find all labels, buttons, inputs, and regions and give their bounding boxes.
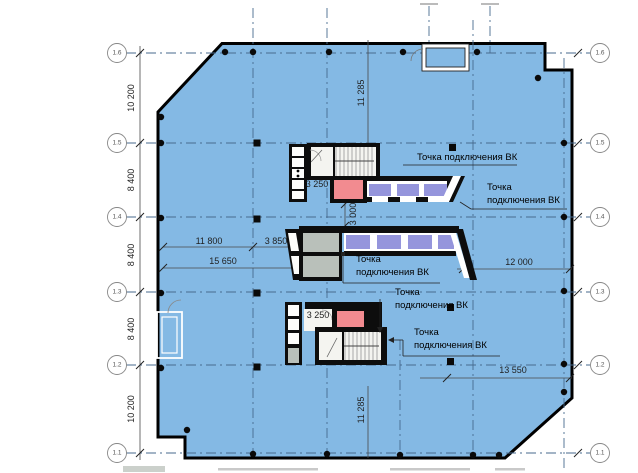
dim-bay-top: 11 285 (356, 80, 366, 107)
dim-core-width: 3 850 (265, 236, 288, 246)
axis-label-right-1-2: 1.2 (595, 362, 604, 369)
dim-core-offset: 11 800 (196, 236, 223, 246)
axis-label-right-1-6: 1.6 (595, 50, 604, 57)
vk-label-3-line2: подключения ВК (356, 267, 429, 278)
dim-left-bay-0: 10 200 (126, 84, 136, 112)
axis-label-left-1-6: 1.6 (112, 50, 121, 57)
dim-left-bay-4: 10 200 (126, 395, 136, 423)
vk-label-4-line1: Точка (395, 287, 420, 298)
dim-left-bay-1: 8 400 (126, 169, 136, 192)
dim-right-span: 12 000 (505, 257, 533, 267)
shaft-cells-bottom (288, 305, 299, 344)
axis-label-right-1-1: 1.1 (595, 450, 604, 457)
shaft-cells (292, 147, 304, 199)
dim-core-gap: 3 000 (348, 203, 358, 226)
vk-label-2-line1: Точка (487, 182, 512, 193)
axis-label-right-1-4: 1.4 (595, 214, 604, 221)
vk-label-5-line2: подключения ВК (414, 340, 487, 351)
axis-label-left-1-4: 1.4 (112, 214, 121, 221)
vk-label-2-line2: подключения ВК (487, 195, 560, 206)
gray-room-1 (303, 231, 339, 252)
gray-room-2 (303, 256, 339, 277)
vk-label-1: Точка подключения ВК (417, 152, 517, 163)
dim-left-bay-3: 8 400 (126, 318, 136, 341)
axis-label-right-1-3: 1.3 (595, 289, 604, 296)
dim-shaft-bottom: 3 250 (307, 310, 330, 320)
core-bottom (285, 302, 387, 365)
dim-left-bay-2: 8 400 (126, 244, 136, 267)
dim-bottom-span: 13 550 (499, 365, 527, 375)
dim-bay-bottom: 11 285 (356, 397, 366, 424)
dim-shaft-top: 3 250 (306, 179, 329, 189)
elevator-doors-top (372, 197, 444, 202)
vk-label-5-line1: Точка (414, 327, 439, 338)
floor-plan-drawing (0, 0, 638, 473)
vk-label-3-line1: Точка (356, 254, 381, 265)
cutoff-artifacts (123, 466, 525, 472)
axis-label-left-1-2: 1.2 (112, 362, 121, 369)
axis-label-left-1-5: 1.5 (112, 140, 121, 147)
elevator-cars-top (369, 184, 447, 196)
axis-label-left-1-1: 1.1 (112, 450, 121, 457)
axis-label-right-1-5: 1.5 (595, 140, 604, 147)
vk-label-4-line2: подключения ВК (395, 300, 468, 311)
axis-label-left-1-3: 1.3 (112, 289, 121, 296)
floor-plan-canvas: 1.6 1.5 1.4 1.3 1.2 1.1 1.6 1.5 1.4 1.3 … (0, 0, 638, 473)
dim-core-total: 15 650 (209, 256, 237, 266)
